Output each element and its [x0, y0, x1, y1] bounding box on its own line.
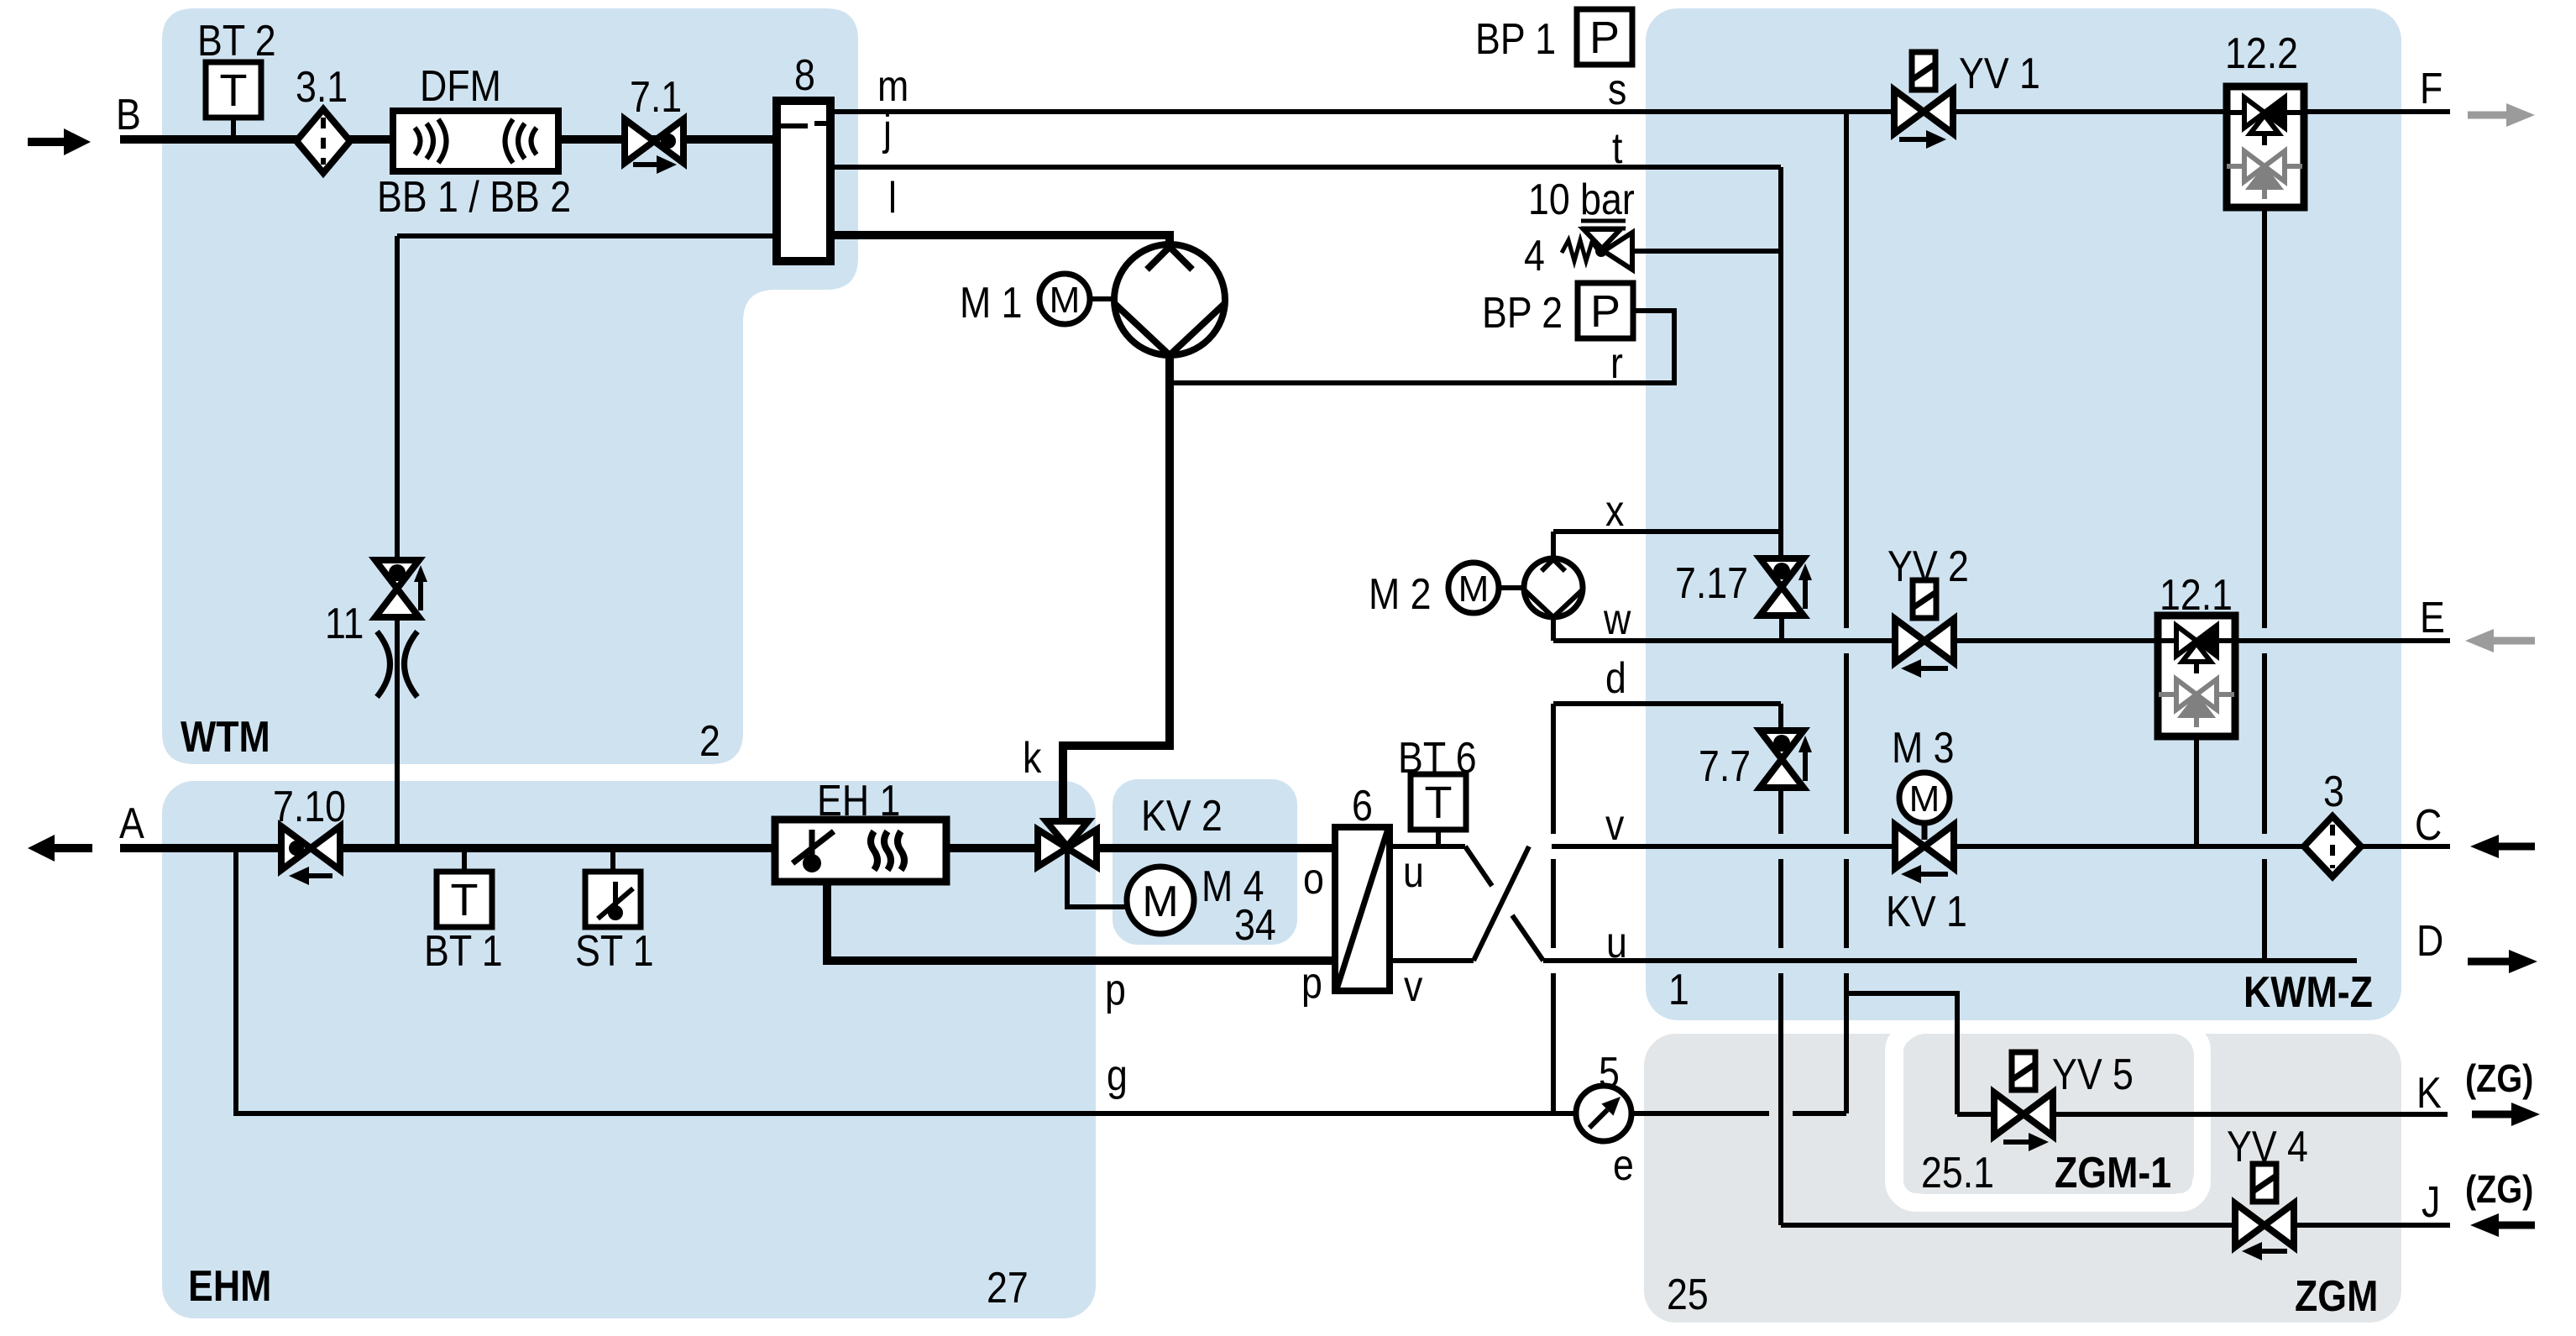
svg-text:d: d — [1605, 654, 1626, 703]
svg-text:BB 1 / BB 2: BB 1 / BB 2 — [377, 173, 571, 222]
svg-text:KV 1: KV 1 — [1886, 888, 1967, 936]
svg-text:8: 8 — [794, 51, 815, 100]
svg-text:w: w — [1603, 595, 1631, 644]
svg-text:s: s — [1608, 65, 1626, 114]
svg-text:p: p — [1301, 959, 1322, 1008]
svg-text:T: T — [451, 875, 479, 925]
svg-text:10 bar: 10 bar — [1528, 176, 1635, 224]
svg-text:M 2: M 2 — [1369, 570, 1432, 619]
svg-text:KWM-Z: KWM-Z — [2244, 968, 2373, 1017]
svg-text:6: 6 — [1352, 782, 1373, 830]
svg-text:25: 25 — [1667, 1271, 1709, 1319]
svg-text:YV 2: YV 2 — [1887, 542, 1969, 591]
svg-text:7.10: 7.10 — [273, 783, 346, 831]
svg-text:(ZG): (ZG) — [2465, 1168, 2533, 1211]
svg-text:7.7: 7.7 — [1699, 742, 1751, 791]
svg-text:5: 5 — [1599, 1049, 1620, 1098]
svg-text:B: B — [116, 91, 141, 139]
svg-text:J: J — [2422, 1178, 2440, 1227]
svg-text:BT 1: BT 1 — [424, 927, 503, 976]
svg-text:r: r — [1610, 339, 1623, 388]
svg-text:t: t — [1612, 124, 1623, 173]
svg-text:C: C — [2415, 801, 2442, 850]
svg-text:l: l — [888, 174, 897, 223]
svg-text:j: j — [882, 106, 892, 155]
svg-text:p: p — [1105, 966, 1126, 1014]
svg-text:BP 1: BP 1 — [1475, 15, 1556, 64]
svg-text:7.17: 7.17 — [1675, 559, 1748, 608]
svg-text:M: M — [1458, 568, 1490, 610]
svg-text:2: 2 — [699, 717, 720, 766]
svg-text:EH 1: EH 1 — [817, 777, 900, 825]
svg-text:T: T — [220, 65, 248, 116]
svg-text:BT 6: BT 6 — [1398, 734, 1477, 783]
svg-text:KV 2: KV 2 — [1141, 792, 1223, 841]
svg-text:ST 1: ST 1 — [575, 927, 654, 976]
svg-text:7.1: 7.1 — [630, 73, 682, 122]
svg-text:BT 2: BT 2 — [197, 17, 276, 65]
svg-text:u: u — [1606, 919, 1627, 967]
svg-text:YV 1: YV 1 — [1959, 50, 2040, 98]
svg-text:ZGM-1: ZGM-1 — [2055, 1149, 2171, 1197]
svg-text:4: 4 — [1524, 232, 1545, 280]
svg-text:M: M — [1142, 878, 1178, 926]
svg-text:M 3: M 3 — [1892, 724, 1955, 773]
svg-text:E: E — [2420, 594, 2445, 642]
svg-text:A: A — [119, 799, 144, 848]
svg-text:11: 11 — [325, 600, 364, 648]
svg-text:u: u — [1403, 848, 1424, 897]
svg-text:e: e — [1613, 1141, 1634, 1190]
svg-text:M 1: M 1 — [960, 279, 1023, 327]
svg-text:YV 4: YV 4 — [2227, 1123, 2308, 1171]
svg-text:12.2: 12.2 — [2225, 29, 2298, 78]
svg-text:12.1: 12.1 — [2160, 571, 2233, 620]
svg-text:v: v — [1404, 962, 1423, 1011]
svg-text:ZGM: ZGM — [2295, 1272, 2378, 1321]
svg-text:DFM: DFM — [420, 62, 501, 111]
svg-text:3: 3 — [2323, 768, 2344, 816]
svg-text:1: 1 — [1668, 966, 1689, 1014]
svg-text:k: k — [1023, 734, 1042, 783]
svg-text:M: M — [1050, 280, 1081, 321]
svg-text:34: 34 — [1234, 901, 1276, 950]
svg-text:P: P — [1589, 13, 1620, 63]
svg-text:g: g — [1107, 1051, 1128, 1100]
svg-text:x: x — [1605, 487, 1624, 536]
svg-text:D: D — [2416, 917, 2443, 966]
svg-text:F: F — [2420, 65, 2442, 113]
svg-text:(ZG): (ZG) — [2465, 1057, 2533, 1100]
svg-text:WTM: WTM — [181, 713, 270, 762]
svg-text:o: o — [1303, 855, 1324, 904]
svg-text:M: M — [1909, 778, 1940, 820]
svg-text:v: v — [1605, 801, 1625, 850]
svg-text:25.1: 25.1 — [1921, 1149, 1994, 1197]
svg-text:K: K — [2416, 1069, 2442, 1118]
svg-text:BP 2: BP 2 — [1482, 289, 1563, 338]
svg-text:3.1: 3.1 — [296, 63, 348, 112]
svg-text:P: P — [1590, 286, 1620, 337]
svg-text:T: T — [1425, 778, 1453, 828]
svg-text:EHM: EHM — [188, 1262, 271, 1311]
svg-text:YV 5: YV 5 — [2052, 1050, 2134, 1099]
svg-text:27: 27 — [987, 1264, 1029, 1312]
svg-text:m: m — [877, 62, 908, 111]
